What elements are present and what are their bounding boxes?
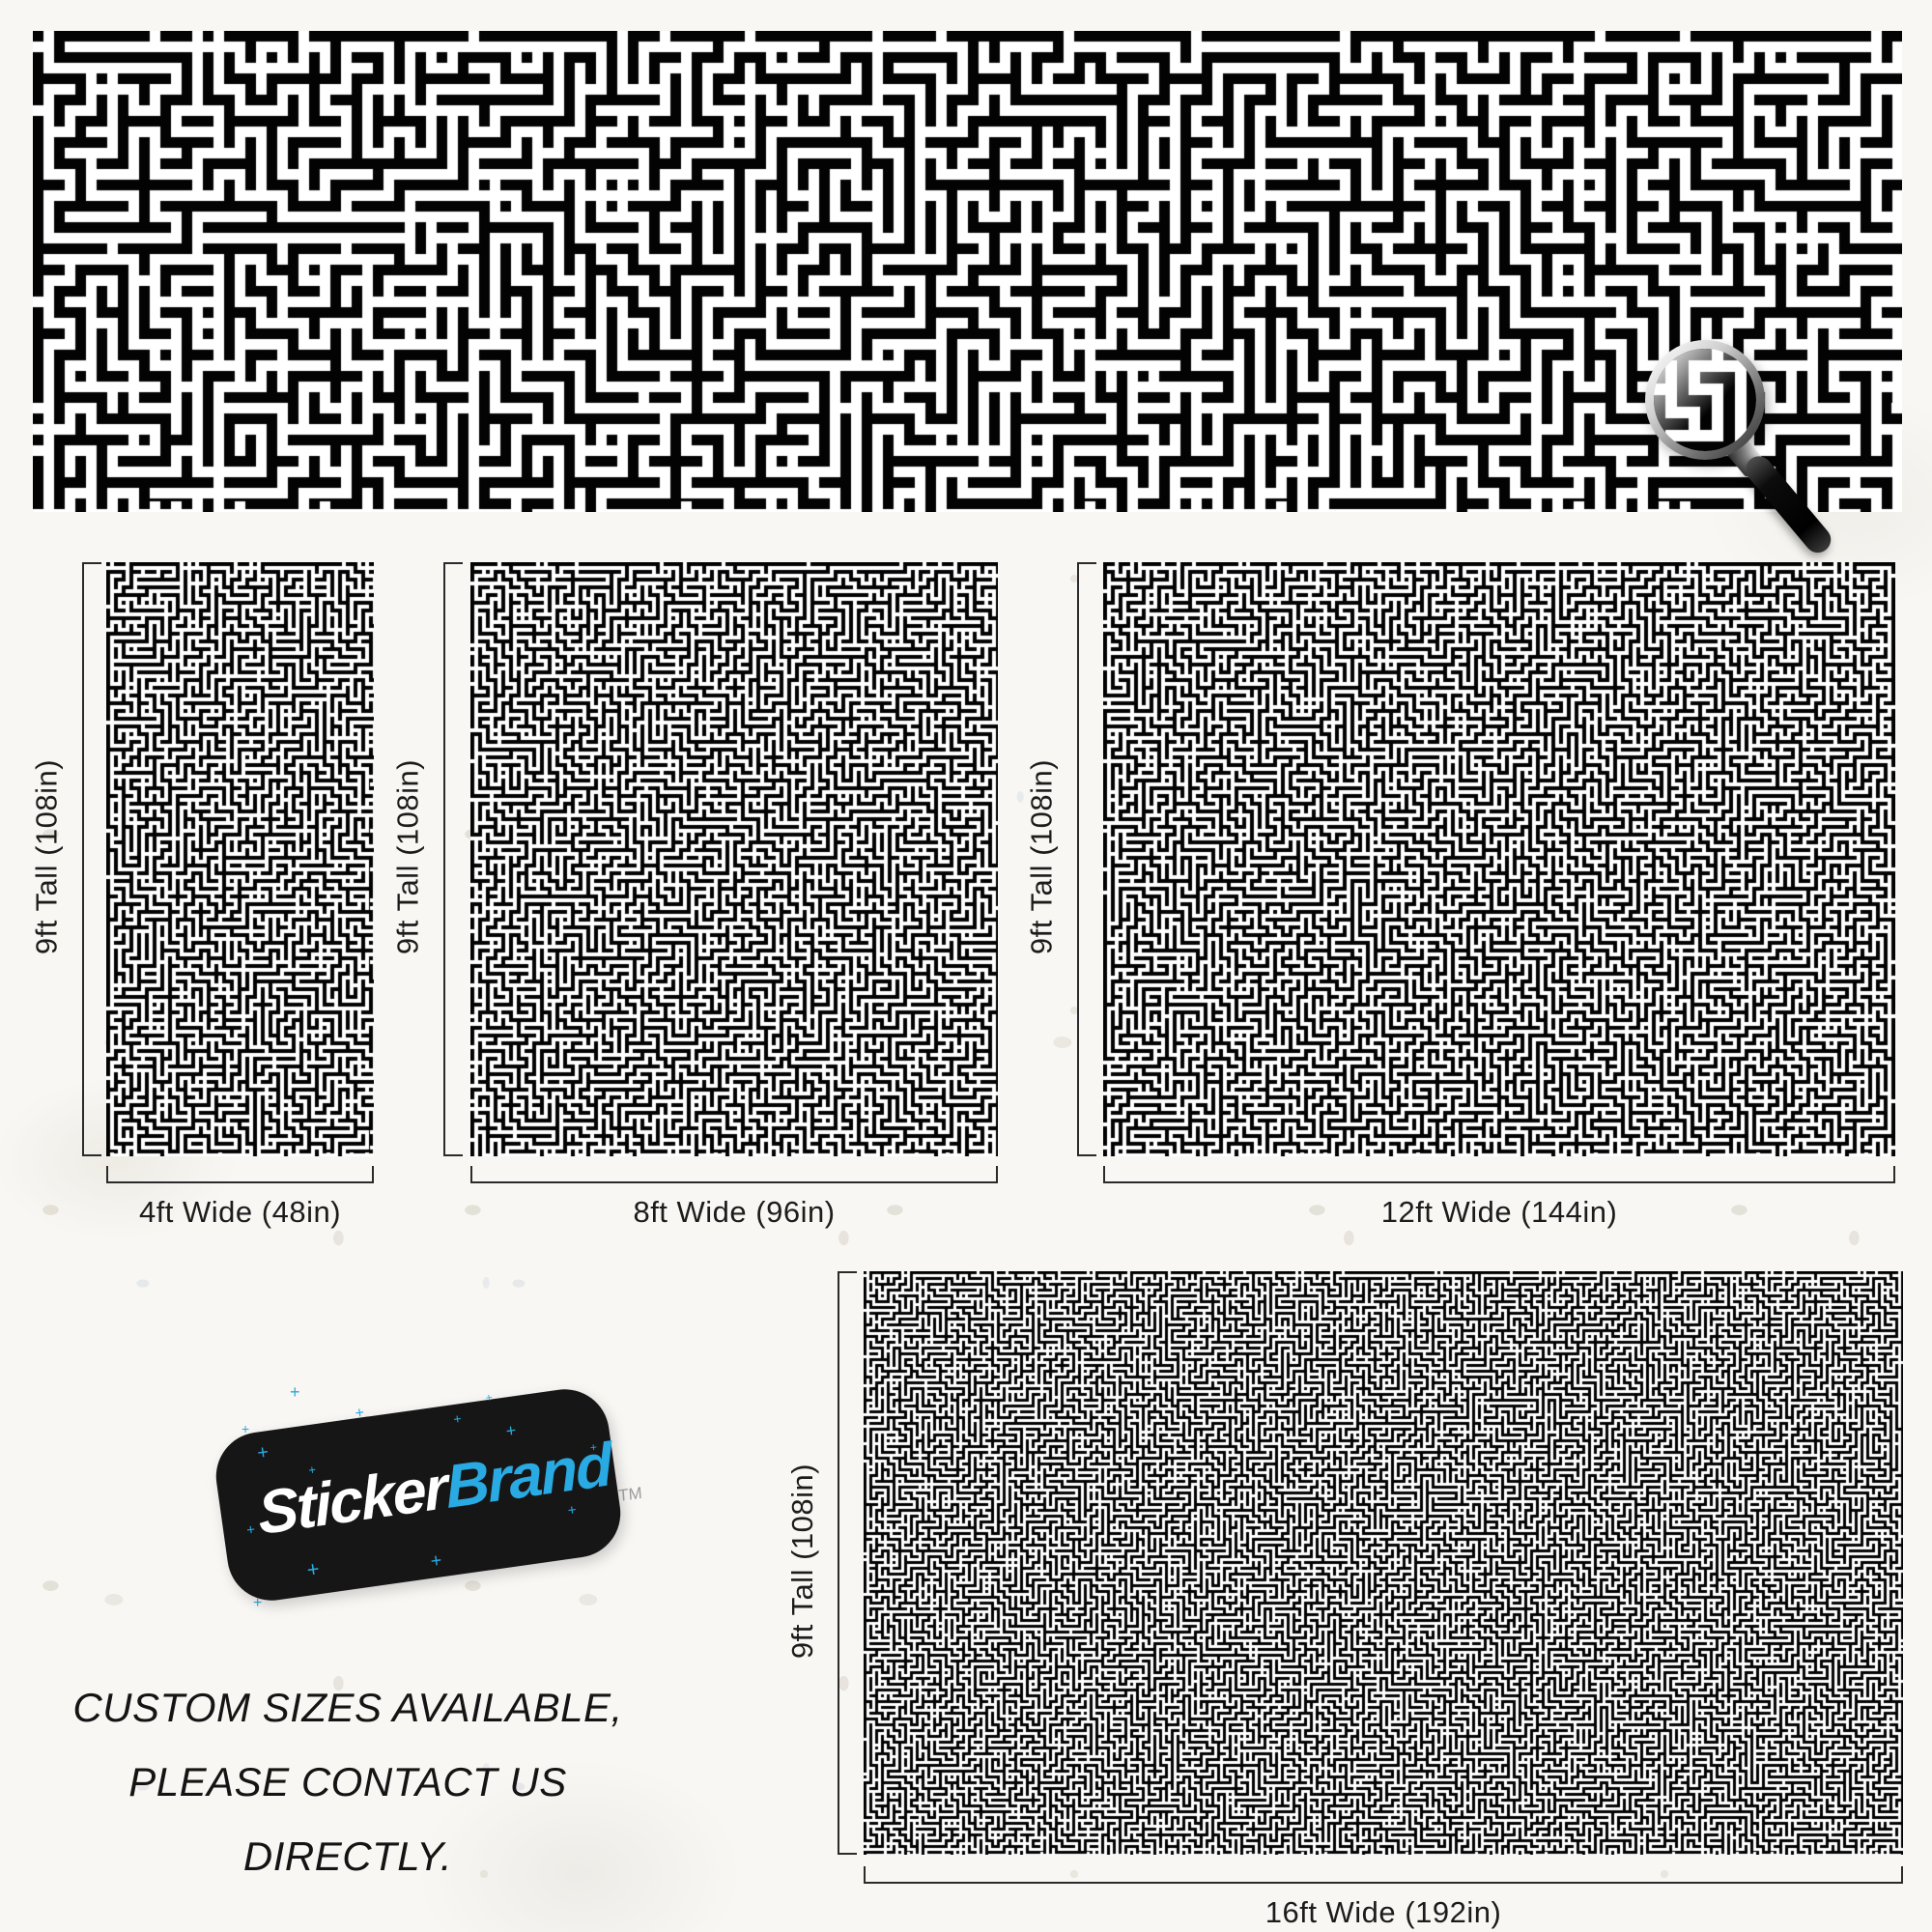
sparkle-plus-icon: +: [452, 1411, 462, 1426]
sparkle-plus-icon: +: [290, 1383, 300, 1401]
height-label-8ft: 9ft Tall (108in): [391, 560, 426, 1154]
sparkle-plus-icon: +: [256, 1442, 270, 1463]
height-bracket-12ft: [1077, 562, 1096, 1156]
stickerbrand-wordmark: StickerBrandTM: [256, 1425, 642, 1555]
size-preview-12ft: [1103, 562, 1895, 1156]
stickerbrand-logo-card: + + + + + + + + + + + StickerBrandTM: [211, 1383, 626, 1605]
width-bracket-4ft: [106, 1166, 374, 1183]
sparkle-plus-icon: +: [485, 1391, 494, 1404]
logo-word-sticker: Sticker: [256, 1453, 448, 1547]
height-bracket-8ft: [443, 562, 463, 1156]
width-bracket-8ft: [470, 1166, 998, 1183]
height-label-12ft: 9ft Tall (108in): [1025, 560, 1060, 1154]
maze-pattern-16ft-canvas: [864, 1271, 1903, 1855]
maze-pattern-8ft-canvas: [470, 562, 998, 1156]
height-bracket-16ft: [838, 1271, 857, 1855]
width-bracket-12ft: [1103, 1166, 1895, 1183]
height-bracket-4ft: [82, 562, 101, 1156]
maze-pattern-4ft-canvas: [106, 562, 374, 1156]
height-label-16ft: 9ft Tall (108in): [785, 1269, 820, 1853]
sparkle-plus-icon: +: [355, 1406, 365, 1422]
magnifier-ring: [1645, 340, 1765, 460]
logo-word-brand: Brand: [443, 1431, 612, 1521]
logo-trademark: TM: [618, 1483, 643, 1505]
size-preview-8ft: [470, 562, 998, 1156]
magnifier-lens: [1654, 349, 1756, 451]
maze-pattern-banner: [33, 31, 1902, 512]
sparkle-plus-icon: +: [504, 1421, 517, 1439]
product-size-chart: 9ft Tall (108in) 4ft Wide (48in) 9ft Tal…: [0, 0, 1932, 1932]
width-label-12ft: 12ft Wide (144in): [1103, 1195, 1895, 1230]
maze-pattern-banner-canvas: [33, 31, 1902, 512]
sparkle-plus-icon: +: [305, 1558, 321, 1581]
width-label-16ft: 16ft Wide (192in): [864, 1895, 1903, 1930]
size-preview-4ft: [106, 562, 374, 1156]
size-preview-16ft: [864, 1271, 1903, 1855]
width-bracket-16ft: [864, 1866, 1903, 1884]
sparkle-plus-icon: +: [245, 1522, 256, 1538]
sparkle-plus-icon: +: [429, 1550, 442, 1571]
width-label-4ft: 4ft Wide (48in): [106, 1195, 374, 1230]
height-label-4ft: 9ft Tall (108in): [30, 560, 65, 1154]
width-label-8ft: 8ft Wide (96in): [470, 1195, 998, 1230]
custom-sizes-notice: CUSTOM SIZES AVAILABLE, PLEASE CONTACT U…: [29, 1670, 667, 1893]
custom-sizes-notice-line2: PLEASE CONTACT US DIRECTLY.: [29, 1745, 667, 1893]
custom-sizes-notice-line1: CUSTOM SIZES AVAILABLE,: [29, 1670, 667, 1745]
magnifier-lens-shine: [1654, 349, 1756, 451]
maze-pattern-12ft-canvas: [1103, 562, 1895, 1156]
